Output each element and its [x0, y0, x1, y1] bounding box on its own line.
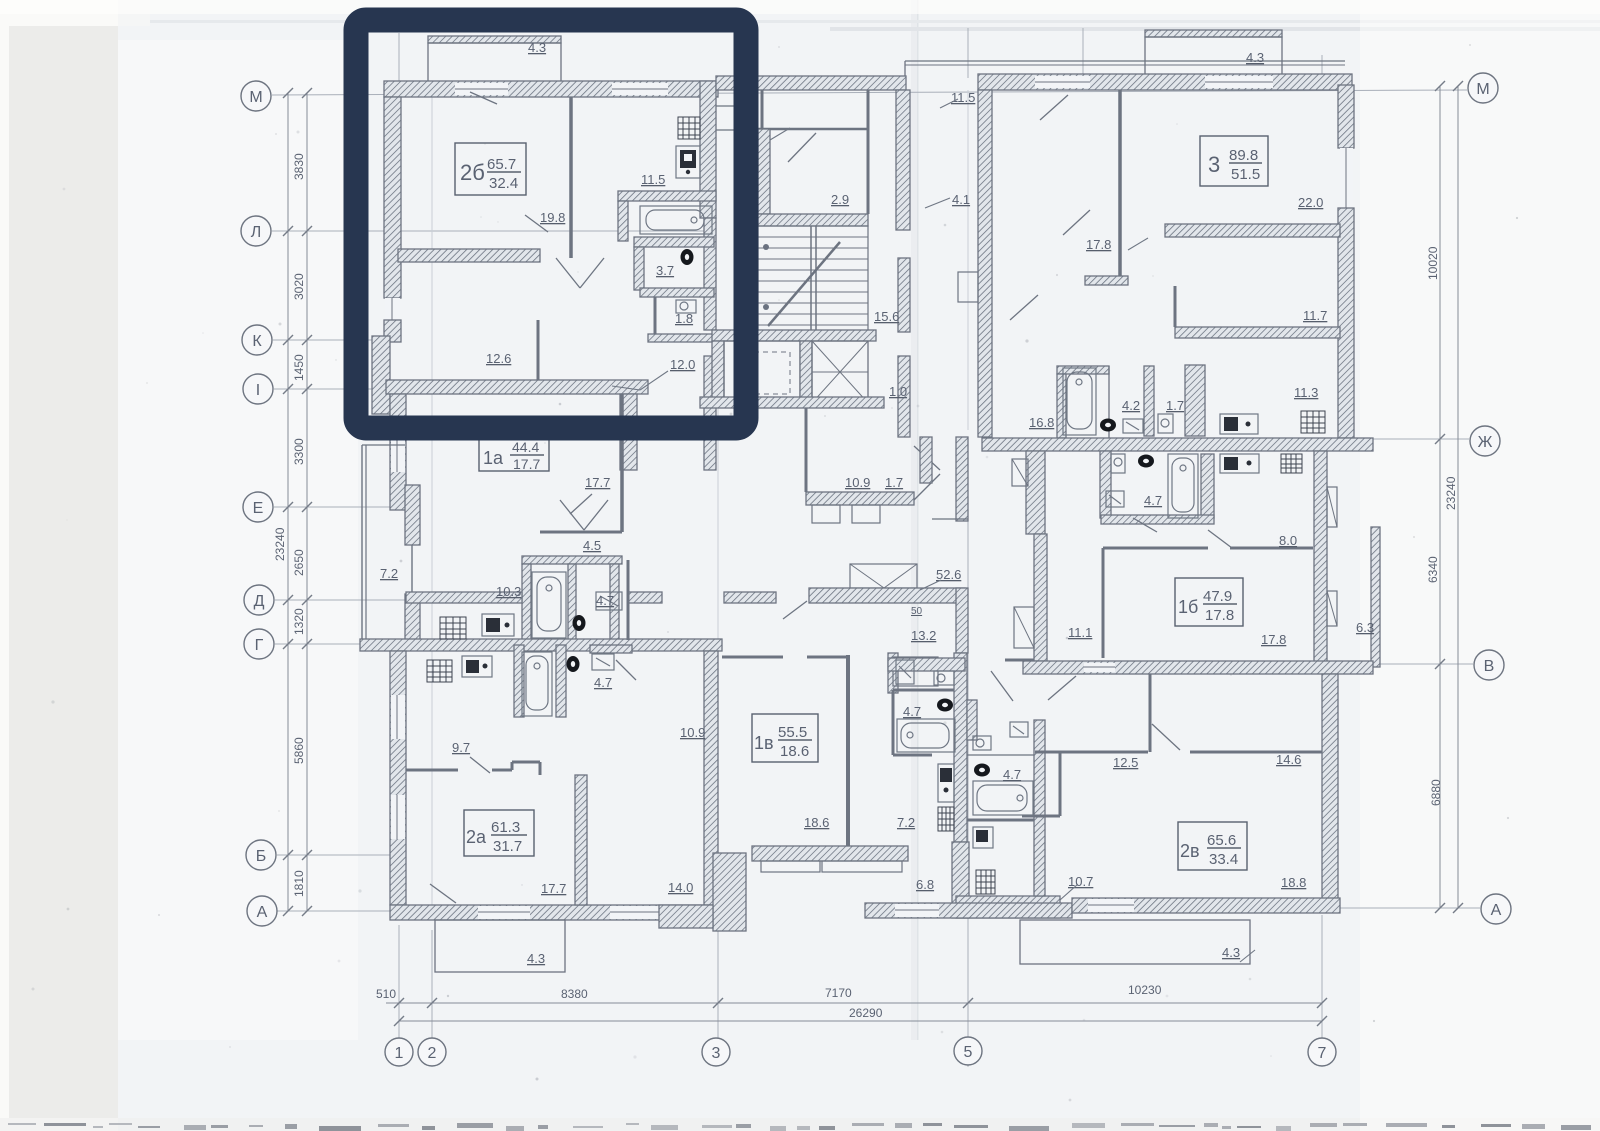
svg-text:Д: Д: [254, 593, 265, 610]
svg-text:5: 5: [964, 1044, 973, 1061]
svg-text:10.9: 10.9: [845, 475, 870, 490]
svg-text:8.0: 8.0: [1279, 533, 1297, 548]
svg-text:1в: 1в: [754, 733, 774, 753]
svg-text:11.5: 11.5: [951, 90, 975, 105]
svg-text:К: К: [252, 333, 262, 350]
svg-text:44.4: 44.4: [512, 439, 539, 455]
svg-text:5860: 5860: [292, 737, 306, 764]
svg-text:3.7: 3.7: [656, 263, 674, 278]
svg-text:9.7: 9.7: [452, 740, 470, 755]
svg-text:Г: Г: [255, 637, 264, 654]
svg-text:1а: 1а: [483, 448, 504, 468]
svg-text:2в: 2в: [1180, 841, 1200, 861]
svg-text:17.8: 17.8: [1261, 632, 1286, 647]
svg-text:4.3: 4.3: [527, 951, 545, 966]
svg-text:7.2: 7.2: [380, 566, 398, 581]
svg-text:4.3: 4.3: [1246, 50, 1264, 65]
svg-text:12.6: 12.6: [486, 351, 511, 366]
svg-text:1.0: 1.0: [889, 384, 907, 399]
svg-text:4.5: 4.5: [583, 538, 601, 553]
svg-text:2: 2: [428, 1045, 437, 1062]
svg-text:510: 510: [376, 987, 396, 1001]
svg-text:В: В: [1484, 658, 1495, 675]
svg-text:12.5: 12.5: [1113, 755, 1138, 770]
svg-text:6.8: 6.8: [916, 877, 934, 892]
svg-text:А: А: [1491, 902, 1502, 919]
svg-text:8380: 8380: [561, 987, 588, 1001]
svg-text:1450: 1450: [292, 354, 306, 381]
svg-text:6.3: 6.3: [1356, 620, 1374, 635]
svg-text:16.8: 16.8: [1029, 415, 1054, 430]
svg-text:11.7: 11.7: [1303, 308, 1327, 323]
svg-text:26290: 26290: [849, 1006, 883, 1020]
svg-text:17.8: 17.8: [1205, 607, 1234, 624]
svg-text:1.7: 1.7: [885, 475, 903, 490]
svg-text:18.6: 18.6: [804, 815, 829, 830]
svg-text:1.7: 1.7: [1166, 398, 1184, 413]
svg-text:10.7: 10.7: [1068, 874, 1093, 889]
svg-text:4.7: 4.7: [596, 593, 614, 608]
svg-text:23240: 23240: [1444, 476, 1458, 510]
svg-text:13.2: 13.2: [911, 628, 936, 643]
svg-text:17.8: 17.8: [1086, 237, 1111, 252]
svg-text:31.7: 31.7: [493, 838, 522, 855]
svg-text:12.0: 12.0: [670, 357, 695, 372]
svg-text:7.2: 7.2: [897, 815, 915, 830]
svg-text:65.6: 65.6: [1207, 832, 1236, 849]
svg-text:14.6: 14.6: [1276, 752, 1301, 767]
svg-text:I: I: [256, 382, 260, 399]
svg-text:23240: 23240: [273, 527, 287, 561]
svg-text:Е: Е: [253, 500, 264, 517]
svg-text:10230: 10230: [1128, 983, 1162, 997]
svg-text:2650: 2650: [292, 549, 306, 576]
svg-text:55.5: 55.5: [778, 724, 807, 741]
svg-text:4.3: 4.3: [528, 40, 546, 55]
svg-text:6880: 6880: [1429, 779, 1443, 806]
svg-text:1320: 1320: [292, 608, 306, 635]
svg-text:1.8: 1.8: [675, 311, 693, 326]
svg-text:51.5: 51.5: [1231, 166, 1260, 183]
svg-text:3: 3: [712, 1045, 721, 1062]
svg-text:19.8: 19.8: [540, 210, 565, 225]
svg-text:7: 7: [1318, 1045, 1327, 1062]
svg-text:89.8: 89.8: [1229, 147, 1258, 164]
svg-text:11.1: 11.1: [1068, 625, 1092, 640]
svg-text:10.3: 10.3: [496, 584, 521, 599]
svg-text:15.6: 15.6: [874, 309, 899, 324]
svg-text:33.4: 33.4: [1209, 851, 1238, 868]
svg-text:52.6: 52.6: [936, 567, 961, 582]
svg-text:11.3: 11.3: [1294, 385, 1318, 400]
svg-text:3830: 3830: [292, 153, 306, 180]
svg-text:2а: 2а: [466, 827, 487, 847]
svg-text:3300: 3300: [292, 438, 306, 465]
svg-text:3020: 3020: [292, 273, 306, 300]
svg-text:17.7: 17.7: [513, 456, 540, 472]
svg-text:7170: 7170: [825, 986, 852, 1000]
svg-text:2б: 2б: [460, 160, 485, 185]
svg-text:4.7: 4.7: [903, 704, 921, 719]
svg-text:4.7: 4.7: [594, 675, 612, 690]
svg-text:А: А: [257, 904, 268, 921]
svg-text:14.0: 14.0: [668, 880, 693, 895]
svg-text:18.6: 18.6: [780, 743, 809, 760]
svg-text:4.2: 4.2: [1122, 398, 1140, 413]
svg-text:10020: 10020: [1426, 246, 1440, 280]
svg-text:50: 50: [911, 606, 923, 617]
svg-text:6340: 6340: [1426, 556, 1440, 583]
svg-text:4.3: 4.3: [1222, 945, 1240, 960]
svg-text:Ж: Ж: [1478, 434, 1493, 451]
svg-text:Л: Л: [251, 224, 262, 241]
svg-text:4.7: 4.7: [1003, 767, 1021, 782]
svg-text:10.9: 10.9: [680, 725, 705, 740]
svg-text:2.9: 2.9: [831, 192, 849, 207]
svg-text:4.1: 4.1: [952, 192, 970, 207]
svg-text:17.7: 17.7: [541, 881, 566, 896]
svg-text:32.4: 32.4: [489, 175, 518, 192]
svg-text:61.3: 61.3: [491, 819, 520, 836]
svg-text:17.7: 17.7: [585, 475, 610, 490]
svg-text:47.9: 47.9: [1203, 588, 1232, 605]
svg-text:Б: Б: [256, 848, 267, 865]
svg-text:3: 3: [1208, 152, 1220, 177]
svg-text:65.7: 65.7: [487, 156, 516, 173]
svg-text:4.7: 4.7: [1144, 493, 1162, 508]
svg-text:1б: 1б: [1178, 597, 1198, 617]
svg-text:М: М: [249, 89, 262, 106]
svg-text:М: М: [1476, 81, 1489, 98]
svg-text:18.8: 18.8: [1281, 875, 1306, 890]
svg-text:22.0: 22.0: [1298, 195, 1323, 210]
svg-text:1810: 1810: [292, 870, 306, 897]
svg-text:1: 1: [395, 1045, 404, 1062]
svg-text:11.5: 11.5: [641, 172, 665, 187]
